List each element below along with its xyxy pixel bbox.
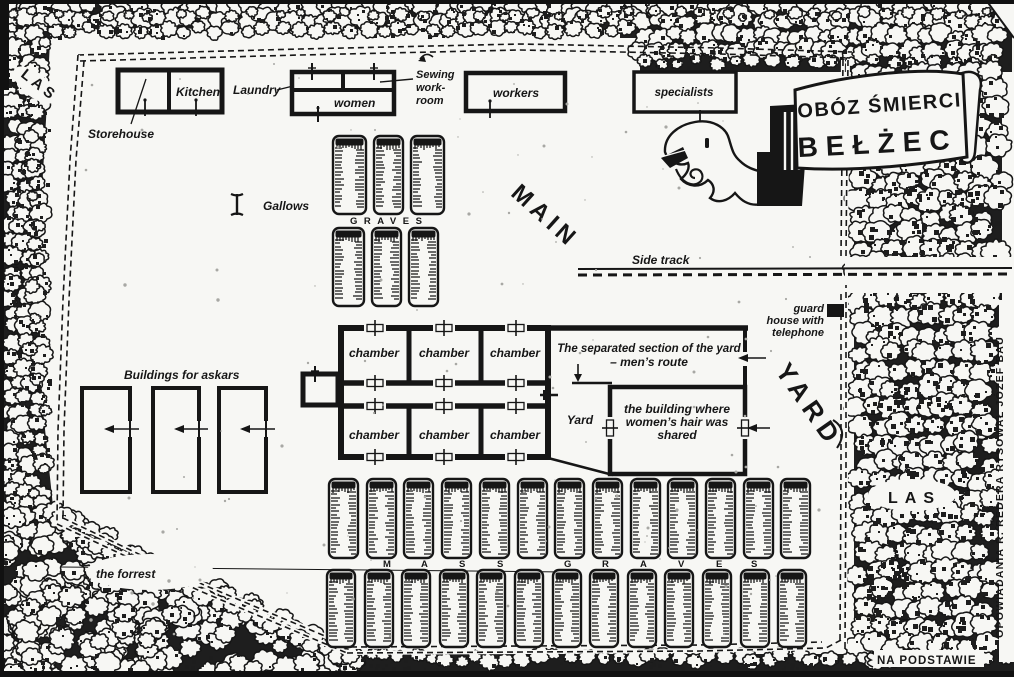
svg-text:Sewing: Sewing	[416, 69, 455, 81]
svg-text:chamber: chamber	[490, 346, 541, 360]
svg-text:S: S	[497, 559, 503, 570]
svg-text:house with: house with	[767, 315, 825, 327]
svg-text:the building where: the building where	[624, 402, 730, 416]
svg-text:Side track: Side track	[632, 253, 691, 267]
svg-text:guard: guard	[792, 303, 824, 315]
svg-text:NA PODSTAWIE: NA PODSTAWIE	[877, 655, 977, 667]
svg-text:S: S	[751, 559, 757, 570]
svg-text:The separated section of the y: The separated section of the yard	[557, 343, 741, 355]
svg-text:GRAVES: GRAVES	[350, 216, 428, 227]
svg-text:shared: shared	[657, 428, 697, 442]
svg-text:work-: work-	[416, 82, 446, 94]
svg-text:OPOWIADANIA R. REDERA RYSOWAŁ: OPOWIADANIA R. REDERA RYSOWAŁ JÓZEF BAU	[993, 336, 1006, 638]
svg-text:E: E	[716, 559, 722, 570]
svg-text:telephone: telephone	[772, 327, 824, 339]
svg-text:women’s hair was: women’s hair was	[626, 415, 729, 429]
svg-text:women: women	[334, 96, 375, 110]
svg-text:chamber: chamber	[419, 428, 470, 442]
svg-text:Yard: Yard	[567, 413, 594, 427]
svg-text:R: R	[602, 559, 609, 570]
svg-text:M: M	[383, 559, 391, 570]
svg-text:chamber: chamber	[490, 428, 541, 442]
svg-text:G: G	[564, 559, 571, 570]
svg-text:– men’s route: – men’s route	[610, 355, 688, 369]
svg-text:workers: workers	[493, 86, 539, 100]
svg-text:Storehouse: Storehouse	[88, 127, 154, 141]
svg-text:Gallows: Gallows	[263, 199, 309, 213]
svg-text:Laundry: Laundry	[233, 83, 282, 97]
svg-text:Kitchen: Kitchen	[176, 85, 220, 99]
svg-text:chamber: chamber	[419, 346, 470, 360]
svg-text:chamber: chamber	[349, 346, 400, 360]
svg-text:chamber: chamber	[349, 428, 400, 442]
svg-text:A: A	[640, 559, 647, 570]
svg-text:room: room	[416, 95, 444, 107]
svg-text:S: S	[459, 559, 465, 570]
svg-text:V: V	[678, 559, 685, 570]
svg-text:LAS: LAS	[888, 490, 941, 507]
svg-text:A: A	[421, 559, 428, 570]
svg-text:specialists: specialists	[655, 87, 714, 99]
svg-text:the forrest: the forrest	[96, 567, 156, 581]
svg-text:Buildings for askars: Buildings for askars	[124, 368, 240, 382]
